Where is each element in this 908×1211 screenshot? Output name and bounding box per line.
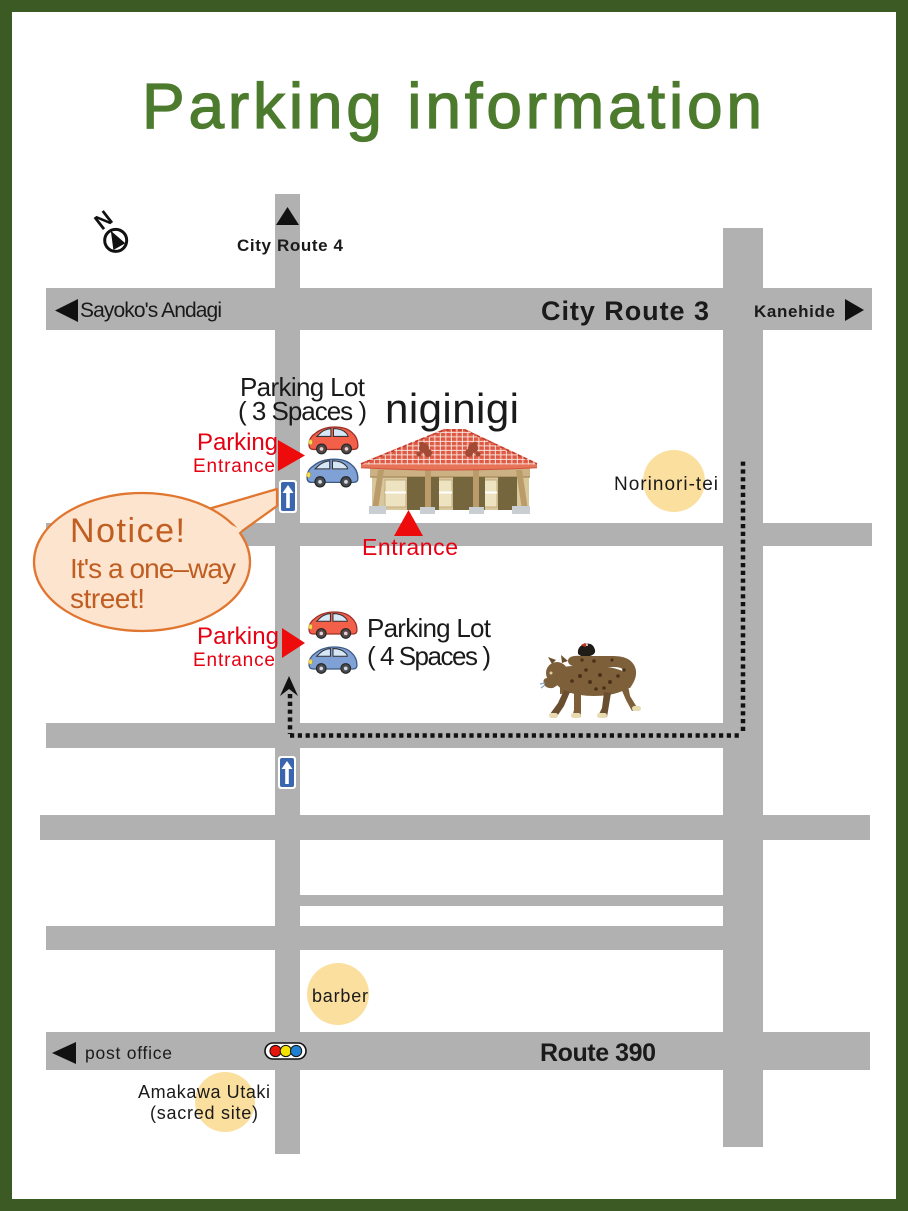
svg-text:Parking Lot: Parking Lot (367, 613, 492, 643)
svg-text:Kanehide: Kanehide (754, 302, 835, 321)
svg-text:Parking information: Parking information (142, 70, 762, 142)
svg-text:Amakawa Utaki: Amakawa Utaki (138, 1082, 270, 1102)
svg-text:City Route 4: City Route 4 (237, 236, 344, 255)
svg-text:City Route 3: City Route 3 (541, 296, 709, 326)
svg-text:It's a one–way: It's a one–way (70, 553, 236, 584)
svg-text:Entrance: Entrance (362, 534, 458, 560)
svg-text:barber: barber (312, 986, 368, 1006)
svg-text:( 4 Spaces ): ( 4 Spaces ) (367, 641, 491, 671)
svg-text:Sayoko's Andagi: Sayoko's Andagi (80, 299, 222, 322)
svg-text:Norinori-tei: Norinori-tei (614, 474, 718, 495)
svg-text:(sacred site): (sacred site) (150, 1103, 258, 1123)
svg-text:( 3 Spaces ): ( 3 Spaces ) (238, 396, 367, 426)
svg-text:Entrance: Entrance (193, 650, 275, 671)
svg-text:Notice!: Notice! (70, 512, 185, 550)
svg-text:Parking: Parking (197, 429, 278, 456)
svg-text:Parking: Parking (197, 623, 279, 650)
svg-text:street!: street! (70, 583, 145, 614)
svg-text:post office: post office (85, 1043, 172, 1063)
svg-text:Entrance: Entrance (193, 456, 275, 477)
svg-text:niginigi: niginigi (385, 385, 519, 432)
svg-text:Route 390: Route 390 (540, 1039, 656, 1067)
